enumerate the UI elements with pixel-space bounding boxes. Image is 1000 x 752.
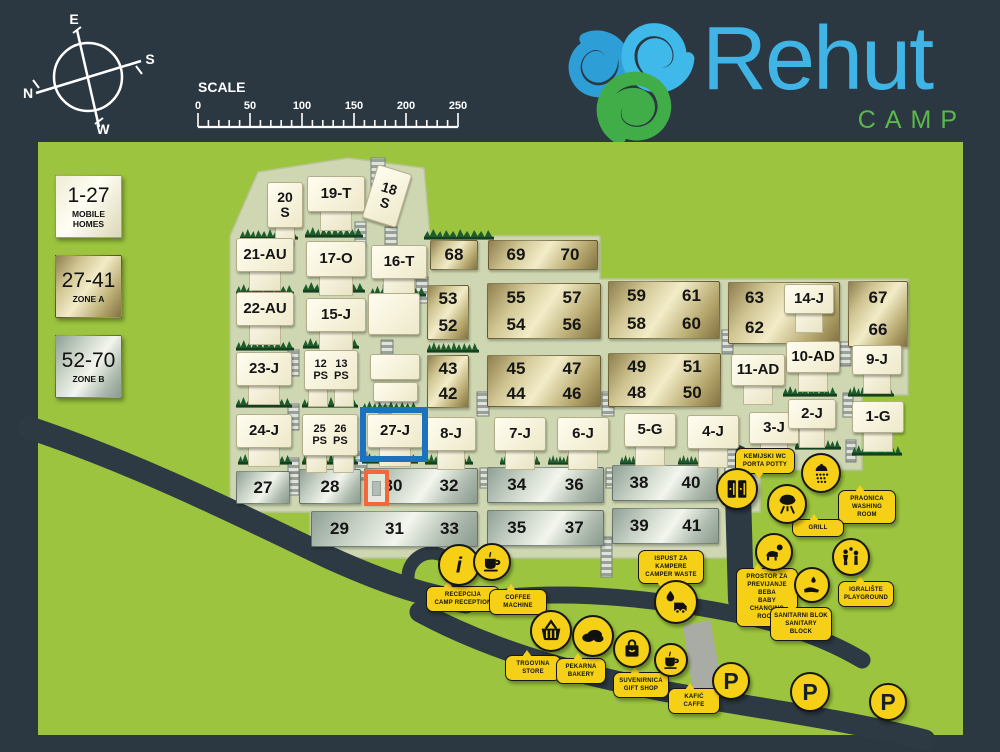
facility-camper-waste[interactable] <box>654 580 698 624</box>
plot-number: 45 <box>507 359 526 379</box>
plot-number: 67 <box>869 288 888 308</box>
facility-label-line: RECEPCIJA <box>430 591 496 599</box>
plot-16-T[interactable]: 16-T <box>371 245 427 279</box>
plot-number: 41 <box>682 516 701 536</box>
mobile-home-porch <box>249 269 281 291</box>
plot-number: 39 <box>630 516 649 536</box>
facility-label-line: ISPUST ZA <box>642 555 700 563</box>
zone-a-block-67-66[interactable]: 6766 <box>848 281 908 347</box>
info-icon: i <box>445 551 473 579</box>
plot-number: 52 <box>439 316 458 336</box>
mobile-home-porch <box>698 446 727 468</box>
plot-number: 28 <box>321 477 340 497</box>
mobile-home-porch <box>320 209 352 231</box>
mobile-home-porch <box>308 387 328 407</box>
facility-label-line: CAMPER WASTE <box>642 571 700 579</box>
facility-label-grill: GRILL <box>792 519 844 537</box>
plot-8-J[interactable]: 8-J <box>426 417 476 451</box>
zone-b-block-27[interactable]: 27 <box>236 471 290 504</box>
mobile-home-porch <box>863 430 892 452</box>
plot-17-O[interactable]: 17-O <box>306 241 366 277</box>
plot-number: 29 <box>330 519 349 539</box>
facility-playground[interactable] <box>832 538 870 576</box>
plot-number: 31 <box>385 519 404 539</box>
plot-number: 62 <box>745 318 764 338</box>
plot-number: 55 <box>507 288 526 308</box>
facility-caffe[interactable] <box>654 643 688 677</box>
plot-number: 58 <box>627 314 646 334</box>
facility-washing-room[interactable] <box>801 453 841 493</box>
basket-icon <box>537 617 565 645</box>
parking-icon[interactable]: P <box>712 662 750 700</box>
mobile-home-porch <box>799 426 826 448</box>
plot-number: 37 <box>565 518 584 538</box>
plot-18-S[interactable]: 18 S <box>362 164 413 228</box>
plot-12-13-PS[interactable]: 12 PS13 PS <box>304 350 358 390</box>
plot-number: 44 <box>507 384 526 404</box>
facility-label-gift-shop: SUVENIRNICAGIFT SHOP <box>613 672 669 698</box>
facility-label-line: SANITARNI BLOK <box>774 612 828 620</box>
facility-label-line: MACHINE <box>493 602 543 610</box>
plot-number: 13 PS <box>334 358 349 382</box>
plot-19-T[interactable]: 19-T <box>307 176 365 212</box>
plot-number: 66 <box>869 320 888 340</box>
plot-21-AU[interactable]: 21-AU <box>236 238 294 272</box>
plot-number: 59 <box>627 286 646 306</box>
zone-b-block-28[interactable]: 28 <box>299 469 361 504</box>
facility-bakery[interactable] <box>572 615 614 657</box>
mobile-home-porch <box>795 311 823 333</box>
mobile-home-porch <box>334 387 354 407</box>
zone-a-block-43-42[interactable]: 4342 <box>427 355 469 408</box>
facility-label-line: PROSTOR ZA <box>740 573 794 581</box>
facility-gift-shop[interactable] <box>613 630 651 668</box>
facility-label-bakery: PEKARNABAKERY <box>556 658 606 684</box>
facility-porta-potty[interactable] <box>716 468 758 510</box>
plot-number: 51 <box>683 357 702 377</box>
facility-sanitary-block[interactable] <box>794 567 830 603</box>
plot-outbuilding-1[interactable] <box>368 293 420 335</box>
plot-15-J[interactable]: 15-J <box>306 298 366 332</box>
bag-icon <box>619 636 645 662</box>
kids-icon <box>838 544 864 570</box>
zone-a-block-49-51-48-50[interactable]: 49514850 <box>608 353 721 407</box>
plot-2-J[interactable]: 2-J <box>788 399 836 429</box>
facility-label-line: TRGOVINA <box>509 660 557 668</box>
zone-b-block-34-36[interactable]: 3436 <box>487 467 604 503</box>
facility-coffee-machine[interactable] <box>473 543 511 581</box>
zone-a-block-55-57-54-56[interactable]: 55575456 <box>487 283 601 339</box>
plot-number: 40 <box>682 473 701 493</box>
parking-icon[interactable]: P <box>869 683 907 721</box>
orange-marker[interactable] <box>364 470 389 506</box>
zone-a-block-53-52[interactable]: 5352 <box>427 285 469 340</box>
plot-number: 53 <box>439 289 458 309</box>
mobile-home-porch <box>863 372 891 394</box>
plot-number: 69 <box>507 245 526 265</box>
mobile-home-porch <box>568 448 597 470</box>
zone-a-block-45-47-44-46[interactable]: 45474446 <box>487 355 601 407</box>
facility-label-playground: IGRALIŠTEPLAYGROUND <box>838 581 894 607</box>
baby-icon <box>761 539 787 565</box>
facility-label-line: SANITARY BLOCK <box>774 620 828 636</box>
plot-number: 68 <box>445 245 464 265</box>
plot-number: 57 <box>563 288 582 308</box>
mobile-home-porch <box>635 444 664 466</box>
grill-icon <box>774 491 801 518</box>
plot-outbuilding-2[interactable] <box>370 354 420 380</box>
plot-25-26-PS[interactable]: 25 PS26 PS <box>302 414 358 456</box>
plot-6-J[interactable]: 6-J <box>557 417 609 451</box>
plot-outbuilding-3[interactable] <box>373 382 418 402</box>
facility-baby-changing-room[interactable] <box>755 533 793 571</box>
facility-store[interactable] <box>530 610 572 652</box>
svg-text:i: i <box>456 553 463 578</box>
plot-7-J[interactable]: 7-J <box>494 417 546 451</box>
plot-number: 50 <box>683 383 702 403</box>
facility-label-line: GIFT SHOP <box>617 685 665 693</box>
facility-label-line: CAMP RECEPTION <box>430 599 496 607</box>
facility-label-line: COFFEE <box>493 594 543 602</box>
facility-grill[interactable] <box>767 484 807 524</box>
plot-number: 61 <box>682 286 701 306</box>
facility-label-line: KAFIĆ <box>672 693 716 701</box>
plot-number: 25 PS <box>312 423 327 447</box>
mobile-home-porch <box>505 448 534 470</box>
zone-a-block-59-61-58-60[interactable]: 59615860 <box>608 281 720 339</box>
facility-label-line: KEMIJSKI WC <box>739 453 791 461</box>
plot-number: 54 <box>507 315 526 335</box>
zone-a-block-68[interactable]: 68 <box>430 240 478 270</box>
plot-number: 32 <box>440 476 459 496</box>
facility-label-sanitary-block: SANITARNI BLOKSANITARY BLOCK <box>770 607 832 641</box>
toilets-icon <box>723 475 751 503</box>
plot-number: 56 <box>563 315 582 335</box>
mobile-home-porch <box>333 453 354 473</box>
facility-label-line: KAMPERE <box>642 563 700 571</box>
orange-marker-glyph <box>372 481 381 496</box>
mobile-home-porch <box>248 445 279 467</box>
plot-1-G[interactable]: 1-G <box>852 401 904 433</box>
plot-4-J[interactable]: 4-J <box>687 415 739 449</box>
facility-label-camper-waste: ISPUST ZAKAMPERECAMPER WASTE <box>638 550 704 584</box>
plot-number: 33 <box>440 519 459 539</box>
facility-label-line: BABY <box>740 597 794 605</box>
facility-label-store: TRGOVINASTORE <box>505 655 561 681</box>
zone-b-block-39-41[interactable]: 3941 <box>612 508 719 544</box>
mobile-home-porch <box>248 383 279 405</box>
plot-number: 43 <box>439 359 458 379</box>
plot-number: 34 <box>507 475 526 495</box>
facility-label-line: PREVIJANJE BEBA <box>740 581 794 597</box>
facility-label-line: CAFFE <box>672 701 716 709</box>
wash-icon <box>800 573 824 597</box>
facility-label-line: GRILL <box>796 524 840 532</box>
camper-icon <box>661 587 691 617</box>
plot-24-J[interactable]: 24-J <box>236 414 292 448</box>
mobile-home-porch <box>798 370 828 392</box>
facility-label-line: PRAONICA <box>842 495 892 503</box>
mobile-home-porch <box>437 448 465 470</box>
mobile-home-porch <box>319 329 353 351</box>
plot-number: 60 <box>682 314 701 334</box>
plot-number: 63 <box>745 288 764 308</box>
facility-label-line: PLAYGROUND <box>842 594 890 602</box>
parking-icon[interactable]: P <box>790 672 830 712</box>
facility-label-line: SUVENIRNICA <box>617 677 665 685</box>
mobile-home-porch <box>319 274 353 296</box>
facility-label-line: PORTA POTTY <box>739 461 791 469</box>
camp-map-screenshot: E S N W SCALE 0 50 100 150 200 250 Rehut… <box>0 0 1000 752</box>
facility-label-line: PEKARNA <box>560 663 602 671</box>
facility-label-caffe: KAFIĆCAFFE <box>668 688 720 714</box>
plot-23-J[interactable]: 23-J <box>236 352 292 386</box>
plot-number: 36 <box>565 475 584 495</box>
selected-plot-highlight[interactable] <box>360 407 428 462</box>
zone-b-block-29-31-33[interactable]: 293133 <box>311 511 478 547</box>
plot-number: 46 <box>563 384 582 404</box>
plot-number: 42 <box>439 384 458 404</box>
mobile-home-porch <box>743 383 773 405</box>
facility-label-line: STORE <box>509 668 557 676</box>
plot-22-AU[interactable]: 22-AU <box>236 292 294 326</box>
mobile-home-porch <box>306 453 327 473</box>
coffee-icon <box>479 549 505 575</box>
plot-10-AD[interactable]: 10-AD <box>786 341 840 373</box>
facility-label-line: IGRALIŠTE <box>842 586 890 594</box>
facility-label-line: BAKERY <box>560 671 602 679</box>
plot-5-G[interactable]: 5-G <box>624 413 676 447</box>
zone-a-block-69-70[interactable]: 6970 <box>488 240 598 270</box>
zone-b-block-35-37[interactable]: 3537 <box>487 510 604 546</box>
plot-number: 26 PS <box>333 423 348 447</box>
plot-number: 49 <box>627 357 646 377</box>
plot-number: 48 <box>627 383 646 403</box>
plot-9-J[interactable]: 9-J <box>852 345 902 375</box>
zone-b-block-38-40[interactable]: 3840 <box>612 465 718 501</box>
coffee-icon <box>660 649 683 672</box>
mobile-home-porch <box>249 323 281 345</box>
bread-icon <box>579 622 607 650</box>
facility-label-washing-room: PRAONICAWASHING ROOM <box>838 490 896 524</box>
plot-number: 70 <box>561 245 580 265</box>
plot-number: 12 PS <box>313 358 328 382</box>
plot-14-J[interactable]: 14-J <box>784 284 834 314</box>
facility-label-line: WASHING ROOM <box>842 503 892 519</box>
shower-icon <box>808 460 835 487</box>
plot-number: 47 <box>563 359 582 379</box>
plot-20-S[interactable]: 20 S <box>267 182 303 228</box>
plot-number: 27 <box>254 478 273 498</box>
plot-number: 38 <box>630 473 649 493</box>
facility-label-coffee-machine: COFFEEMACHINE <box>489 589 547 615</box>
plot-11-AD[interactable]: 11-AD <box>731 354 785 386</box>
plot-number: 35 <box>507 518 526 538</box>
